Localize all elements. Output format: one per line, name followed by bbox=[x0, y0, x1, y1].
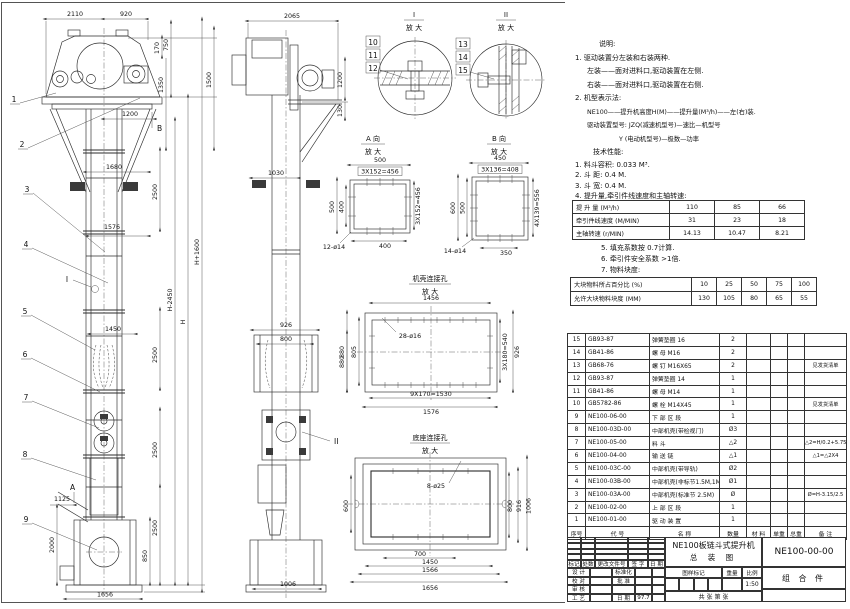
bom-cell: 10 bbox=[568, 398, 586, 411]
bom-cell: NE100-02-00 bbox=[586, 501, 650, 514]
bom-cell: △1=△2X4 bbox=[805, 450, 847, 463]
svg-text:1125: 1125 bbox=[54, 496, 70, 503]
bom-cell: 5 bbox=[568, 462, 586, 475]
bom-cell bbox=[805, 334, 847, 347]
bom-cell: 料 斗 bbox=[650, 437, 720, 450]
svg-text:1006: 1006 bbox=[280, 581, 296, 588]
svg-text:5: 5 bbox=[23, 307, 28, 316]
bom-cell bbox=[788, 411, 805, 424]
svg-text:1566: 1566 bbox=[422, 567, 438, 574]
mark-box bbox=[665, 578, 679, 591]
tech-line: 3. 斗 宽: 0.4 M. bbox=[567, 181, 849, 192]
mark-box bbox=[694, 578, 708, 591]
bom-cell bbox=[747, 411, 771, 424]
bom-cell: NE100-06-00 bbox=[586, 411, 650, 424]
staff-cell bbox=[652, 568, 665, 577]
staff-cell: 工 艺 bbox=[567, 594, 590, 603]
svg-text:2500: 2500 bbox=[152, 520, 159, 536]
svg-text:1656: 1656 bbox=[97, 592, 113, 599]
svg-text:1680: 1680 bbox=[106, 164, 122, 171]
mark-box bbox=[708, 578, 722, 591]
svg-text:1656: 1656 bbox=[422, 585, 438, 592]
rev-header-count: 处数 bbox=[581, 560, 595, 568]
rev-header-mark: 标记 bbox=[567, 560, 581, 568]
svg-text:700: 700 bbox=[414, 551, 426, 558]
bom-cell bbox=[771, 346, 788, 359]
drawing-title-line1: NE100板链斗式提升机 bbox=[672, 540, 754, 552]
bom-cell: 2 bbox=[720, 346, 747, 359]
staff-cell: 97.7 bbox=[635, 594, 652, 603]
svg-text:放 大: 放 大 bbox=[498, 23, 514, 32]
bom-cell: Ø=H-3.15/2.5 bbox=[805, 488, 847, 501]
bom-cell bbox=[788, 450, 805, 463]
svg-text:600: 600 bbox=[343, 500, 350, 512]
bom-cell: 螺 母 M14 bbox=[650, 385, 720, 398]
svg-text:1576: 1576 bbox=[104, 224, 120, 231]
bom-cell: 上 部 区 段 bbox=[650, 501, 720, 514]
table-cell: 50 bbox=[742, 278, 767, 292]
sheet-count: 共 张 第 张 bbox=[665, 591, 762, 602]
svg-text:750: 750 bbox=[163, 39, 170, 51]
bom-cell: 1 bbox=[720, 372, 747, 385]
staff-cell bbox=[635, 577, 652, 586]
svg-text:500: 500 bbox=[460, 202, 467, 214]
svg-text:1500: 1500 bbox=[206, 72, 213, 88]
svg-text:926: 926 bbox=[280, 322, 292, 329]
svg-text:1350: 1350 bbox=[158, 77, 165, 93]
bom-cell bbox=[771, 385, 788, 398]
table-cell: 66 bbox=[760, 201, 805, 214]
svg-text:1450: 1450 bbox=[105, 326, 121, 333]
bom-cell: 见发货清单 bbox=[805, 398, 847, 411]
detail-I-balloons: 10 11 12 bbox=[366, 36, 408, 79]
bom-cell bbox=[747, 450, 771, 463]
front-view: I 2110 920 170 750 1350 1500 1200 B 1680 bbox=[10, 11, 217, 599]
bom-cell bbox=[771, 411, 788, 424]
table-cell: 85 bbox=[715, 201, 760, 214]
table-cell: 主轴转速 (r/MIN) bbox=[573, 227, 670, 240]
bom-cell: 下 部 区 段 bbox=[650, 411, 720, 424]
staff-cell: 日 期 bbox=[612, 594, 635, 603]
engineering-drawing-sheet: .ln{stroke:#2b2b2b;fill:none;stroke-widt… bbox=[0, 0, 850, 609]
bom-cell bbox=[805, 424, 847, 437]
bom-cell bbox=[788, 346, 805, 359]
bom-cell bbox=[805, 411, 847, 424]
bom-cell bbox=[771, 398, 788, 411]
staff-cell: 设 计 bbox=[567, 568, 590, 577]
bom-cell bbox=[747, 501, 771, 514]
notes-heading: 说明: bbox=[567, 38, 849, 52]
bom-cell: 输 送 链 bbox=[650, 450, 720, 463]
bom-cell bbox=[747, 346, 771, 359]
table-cell: 10 bbox=[692, 278, 717, 292]
table-cell: 100 bbox=[792, 278, 817, 292]
table-cell: 130 bbox=[692, 292, 717, 306]
revision-grid bbox=[567, 537, 665, 560]
bom-cell bbox=[805, 501, 847, 514]
bom-cell: 1 bbox=[720, 514, 747, 527]
svg-text:2500: 2500 bbox=[152, 347, 159, 363]
rev-header-doc: 更改文件号 bbox=[595, 560, 628, 568]
bom-cell: Ø1 bbox=[720, 475, 747, 488]
bom-cell: 11 bbox=[568, 385, 586, 398]
base-connection-detail: 底座连接孔 放 大 8-ø25 600 800 916 1006 700 145… bbox=[343, 433, 533, 592]
front-balloons: 1 2 3 4 5 6 7 8 9 bbox=[10, 93, 140, 550]
bom-cell bbox=[747, 424, 771, 437]
svg-text:1: 1 bbox=[12, 95, 17, 104]
svg-text:170: 170 bbox=[154, 42, 161, 54]
bom-cell bbox=[788, 424, 805, 437]
staff-cell: 标准化 bbox=[612, 568, 635, 577]
bom-cell bbox=[805, 372, 847, 385]
drawing-number: NE100-00-00 bbox=[762, 537, 846, 567]
bom-cell: GB93-87 bbox=[586, 334, 650, 347]
svg-text:底座连接孔: 底座连接孔 bbox=[413, 433, 448, 442]
bom-cell bbox=[788, 385, 805, 398]
note-line: 1. 驱动装置分左装和右装两种. bbox=[567, 52, 849, 66]
svg-text:放 大: 放 大 bbox=[406, 23, 422, 32]
bom-cell: 14 bbox=[568, 346, 586, 359]
mark-box bbox=[679, 578, 693, 591]
table-cell: 14.13 bbox=[670, 227, 715, 240]
table-cell: 牵引件线速度 (M/MIN) bbox=[573, 214, 670, 227]
svg-text:2500: 2500 bbox=[152, 442, 159, 458]
svg-text:12-ø14: 12-ø14 bbox=[323, 244, 345, 251]
bom-cell: 15 bbox=[568, 334, 586, 347]
bom-cell bbox=[805, 514, 847, 527]
mark-label: 图样标记 bbox=[665, 567, 722, 578]
bom-cell: 7 bbox=[568, 437, 586, 450]
bom-cell: 螺 钉 M16X65 bbox=[650, 359, 720, 372]
svg-text:400: 400 bbox=[379, 243, 391, 250]
svg-text:1576: 1576 bbox=[423, 409, 439, 416]
bom-cell: 弹簧垫圈 14 bbox=[650, 372, 720, 385]
svg-text:350: 350 bbox=[500, 250, 512, 257]
blank-box bbox=[762, 589, 846, 602]
svg-text:2065: 2065 bbox=[284, 13, 300, 20]
table-cell: 110 bbox=[670, 201, 715, 214]
table-cell: 31 bbox=[670, 214, 715, 227]
bom-cell: Ø2 bbox=[720, 462, 747, 475]
bom-cell bbox=[788, 359, 805, 372]
bom-cell: 1 bbox=[720, 501, 747, 514]
tech-line: 2. 斗 距: 0.4 M. bbox=[567, 170, 849, 181]
bom-cell: GB68-76 bbox=[586, 359, 650, 372]
svg-text:II: II bbox=[504, 11, 508, 19]
svg-text:8-ø25: 8-ø25 bbox=[427, 483, 445, 490]
table-cell: 65 bbox=[767, 292, 792, 306]
detail-I: I 放 大 10 11 12 bbox=[366, 11, 456, 119]
note-line: 驱动装置型号: JZQ(减速机型号)—速比—机型号 bbox=[567, 119, 849, 133]
svg-text:4X139=556: 4X139=556 bbox=[534, 189, 541, 227]
svg-text:3: 3 bbox=[25, 185, 30, 194]
bom-cell: 1 bbox=[720, 411, 747, 424]
svg-text:800: 800 bbox=[507, 500, 514, 512]
bom-cell bbox=[771, 334, 788, 347]
svg-text:11: 11 bbox=[368, 51, 378, 60]
svg-text:920: 920 bbox=[120, 11, 132, 18]
detail-II: II 放 大 13 14 15 bbox=[456, 11, 546, 120]
bom-cell: 2 bbox=[568, 501, 586, 514]
bom-cell bbox=[771, 501, 788, 514]
svg-text:8: 8 bbox=[23, 450, 28, 459]
bom-cell bbox=[788, 398, 805, 411]
staff-cell: 审 核 bbox=[567, 585, 590, 594]
note-line: 5. 填充系数按 0.7计算. bbox=[567, 243, 849, 254]
svg-text:130: 130 bbox=[337, 105, 344, 117]
svg-text:400: 400 bbox=[339, 201, 346, 213]
note-line: 右装——面对进料口,驱动装置在右侧. bbox=[567, 79, 849, 93]
bom-cell: GB41-86 bbox=[586, 385, 650, 398]
notes2-block: 5. 填充系数按 0.7计算. 6. 牵引件安全系数 >1倍. 7. 物料块度: bbox=[567, 243, 849, 276]
bom-cell bbox=[805, 462, 847, 475]
bom-cell bbox=[747, 359, 771, 372]
note-line: NE100——提升机高度H(M)——提升量(M³/h)——左(右)装. bbox=[567, 106, 849, 120]
svg-text:450: 450 bbox=[494, 155, 506, 162]
view-a-label: A bbox=[70, 483, 76, 492]
svg-text:600: 600 bbox=[450, 202, 457, 214]
note-line: Y (电动机型号)—极数—功率 bbox=[567, 133, 849, 147]
bom-cell bbox=[788, 475, 805, 488]
svg-text:2500: 2500 bbox=[152, 184, 159, 200]
bom-cell bbox=[747, 398, 771, 411]
staff-cell bbox=[590, 568, 612, 577]
bom-cell: 3 bbox=[568, 488, 586, 501]
svg-text:14: 14 bbox=[458, 53, 468, 62]
bom-cell: NE100-03A-00 bbox=[586, 488, 650, 501]
bom-cell bbox=[788, 372, 805, 385]
case-connection-detail: 机壳连接孔 放 大 1456 28-ø16 880 805 3X180=540 … bbox=[339, 274, 521, 416]
bom-cell bbox=[788, 514, 805, 527]
tech-line: 1. 料斗容积: 0.033 M³. bbox=[567, 160, 849, 171]
parts-list: 15GB93-87弹簧垫圈 16214GB41-86螺 母 M16213GB68… bbox=[567, 333, 847, 540]
title-block: 标记 处数 更改文件号 签 字 日 期 设 计标准化校 对批 准审 核工 艺日 … bbox=[567, 537, 846, 602]
bom-cell bbox=[771, 437, 788, 450]
tech-heading: 技术性能: bbox=[567, 146, 849, 160]
assembly-label: 组 合 件 bbox=[762, 567, 846, 589]
weight-label: 重量 bbox=[722, 567, 742, 578]
staff-cell bbox=[590, 577, 612, 586]
bom-cell bbox=[747, 334, 771, 347]
capacity-speed-table: 提 升 量 (M³/h)1108566牵引件线速度 (M/MIN)312318主… bbox=[572, 200, 805, 240]
svg-text:2000: 2000 bbox=[49, 537, 56, 553]
note-line: 6. 牵引件安全系数 >1倍. bbox=[567, 254, 849, 265]
bom-cell: NE100-03B-00 bbox=[586, 475, 650, 488]
note-line: 左装——面对进料口,驱动装置在左侧. bbox=[567, 65, 849, 79]
table-cell: 25 bbox=[717, 278, 742, 292]
svg-text:1030: 1030 bbox=[268, 170, 284, 177]
table-cell: 80 bbox=[742, 292, 767, 306]
svg-text:916: 916 bbox=[516, 500, 523, 512]
bom-cell bbox=[771, 372, 788, 385]
staff-cell bbox=[590, 585, 612, 594]
bom-cell: △1 bbox=[720, 450, 747, 463]
svg-text:10: 10 bbox=[368, 38, 378, 47]
table-cell: 18 bbox=[760, 214, 805, 227]
bom-cell: △2 bbox=[720, 437, 747, 450]
bom-cell bbox=[771, 424, 788, 437]
bom-cell bbox=[747, 385, 771, 398]
bom-cell: 1 bbox=[720, 398, 747, 411]
bom-cell: 8 bbox=[568, 424, 586, 437]
drawing-views: .ln{stroke:#2b2b2b;fill:none;stroke-widt… bbox=[0, 0, 565, 609]
bom-cell bbox=[747, 437, 771, 450]
bom-cell: NE100-04-00 bbox=[586, 450, 650, 463]
staff-cell bbox=[590, 594, 612, 603]
staff-cell bbox=[652, 594, 665, 603]
staff-cell bbox=[635, 568, 652, 577]
table-cell: 提 升 量 (M³/h) bbox=[573, 201, 670, 214]
svg-text:1456: 1456 bbox=[423, 295, 439, 302]
rev-header-sign: 签 字 bbox=[628, 560, 648, 568]
svg-text:926: 926 bbox=[514, 346, 521, 358]
svg-text:800: 800 bbox=[280, 336, 292, 343]
svg-text:H: H bbox=[180, 319, 187, 324]
svg-text:1200: 1200 bbox=[122, 111, 138, 118]
table-cell: 23 bbox=[715, 214, 760, 227]
bom-cell: 2 bbox=[720, 359, 747, 372]
svg-text:H-2450: H-2450 bbox=[167, 288, 174, 311]
bom-cell: 中部机壳(标准节 2.5M) bbox=[650, 488, 720, 501]
lump-size-table: 大块物料所占百分比 (%)10255075100允许大块物料块度 (MM)130… bbox=[570, 277, 817, 306]
scale-label: 比例 bbox=[742, 567, 762, 578]
bom-cell: GB93-87 bbox=[586, 372, 650, 385]
front-dimensions: 2110 920 170 750 1350 1500 1200 B 1680 2… bbox=[46, 11, 217, 599]
svg-text:9: 9 bbox=[24, 515, 29, 524]
svg-text:3X152=456: 3X152=456 bbox=[415, 187, 422, 225]
table-cell: 75 bbox=[767, 278, 792, 292]
svg-text:2110: 2110 bbox=[67, 11, 83, 18]
svg-text:I: I bbox=[413, 11, 415, 19]
svg-text:880: 880 bbox=[339, 346, 346, 358]
bom-cell: NE100-03D-00 bbox=[586, 424, 650, 437]
table-cell: 55 bbox=[792, 292, 817, 306]
weight-value bbox=[722, 578, 742, 591]
svg-text:3X152=456: 3X152=456 bbox=[361, 169, 399, 176]
table-cell: 8.21 bbox=[760, 227, 805, 240]
bom-cell: 中部机壳(带检视门) bbox=[650, 424, 720, 437]
detail-ref-II: II bbox=[334, 437, 338, 446]
staff-cell bbox=[652, 577, 665, 586]
svg-text:6: 6 bbox=[23, 350, 28, 359]
svg-text:500: 500 bbox=[329, 201, 336, 213]
bom-cell bbox=[805, 346, 847, 359]
bom-cell bbox=[788, 462, 805, 475]
staff-cell bbox=[652, 585, 665, 594]
bom-cell: 2 bbox=[720, 334, 747, 347]
drawing-title-line2: 总 装 图 bbox=[690, 552, 737, 564]
staff-cell: 批 准 bbox=[612, 577, 635, 586]
bom-cell: GB5782-86 bbox=[586, 398, 650, 411]
drawing-title: NE100板链斗式提升机 总 装 图 bbox=[665, 537, 762, 567]
svg-text:4: 4 bbox=[24, 240, 29, 249]
svg-text:3X180=540: 3X180=540 bbox=[502, 333, 509, 371]
scale-value: 1:50 bbox=[742, 578, 762, 591]
bom-cell: 螺 栓 M14X45 bbox=[650, 398, 720, 411]
bom-cell bbox=[747, 488, 771, 501]
staff-cell bbox=[612, 585, 635, 594]
svg-text:805: 805 bbox=[351, 346, 358, 358]
view-b-label: B bbox=[157, 124, 162, 133]
table-cell: 105 bbox=[717, 292, 742, 306]
bom-cell: NE100-03C-00 bbox=[586, 462, 650, 475]
view-A: A 向 放 大 500 3X152=456 500 400 3X152=456 … bbox=[323, 134, 422, 251]
rev-header-date: 日 期 bbox=[648, 560, 665, 568]
svg-text:H+1600: H+1600 bbox=[194, 239, 201, 265]
detail-ref-I: I bbox=[66, 275, 68, 284]
bom-cell: 1 bbox=[568, 514, 586, 527]
svg-text:1450: 1450 bbox=[422, 559, 438, 566]
bom-cell bbox=[788, 334, 805, 347]
bom-cell: 6 bbox=[568, 450, 586, 463]
svg-text:1200: 1200 bbox=[337, 72, 344, 88]
bom-cell: NE100-01-00 bbox=[586, 514, 650, 527]
svg-text:28-ø16: 28-ø16 bbox=[399, 333, 421, 340]
svg-text:放 大: 放 大 bbox=[365, 147, 381, 156]
bom-cell bbox=[771, 450, 788, 463]
bom-cell bbox=[805, 475, 847, 488]
notes-block: 说明: 1. 驱动装置分左装和右装两种. 左装——面对进料口,驱动装置在左侧. … bbox=[567, 38, 849, 202]
bom-cell: 13 bbox=[568, 359, 586, 372]
bom-cell bbox=[747, 514, 771, 527]
svg-text:9X170=1530: 9X170=1530 bbox=[410, 391, 452, 398]
bom-cell: Ø3 bbox=[720, 424, 747, 437]
bom-cell: 中部机壳(非标节1.5M,1M) bbox=[650, 475, 720, 488]
bom-cell bbox=[747, 462, 771, 475]
bom-cell bbox=[805, 385, 847, 398]
bom-cell bbox=[747, 475, 771, 488]
bom-cell bbox=[747, 372, 771, 385]
staff-cell: 校 对 bbox=[567, 577, 590, 586]
svg-text:12: 12 bbox=[368, 64, 378, 73]
bom-cell: 驱 动 装 置 bbox=[650, 514, 720, 527]
bom-cell: 中部机壳(带导轨) bbox=[650, 462, 720, 475]
table-cell: 大块物料所占百分比 (%) bbox=[571, 278, 692, 292]
bom-cell: 见发货清单 bbox=[805, 359, 847, 372]
note-line: 2. 机型表示法: bbox=[567, 92, 849, 106]
view-B: B 向 放 大 450 3X136=408 600 500 4X139=556 … bbox=[444, 134, 541, 257]
svg-text:7: 7 bbox=[24, 393, 29, 402]
svg-text:15: 15 bbox=[458, 66, 468, 75]
bom-cell bbox=[788, 501, 805, 514]
staff-cell bbox=[635, 585, 652, 594]
svg-text:14-ø14: 14-ø14 bbox=[444, 248, 466, 255]
bom-cell bbox=[771, 514, 788, 527]
bom-cell bbox=[771, 359, 788, 372]
bom-cell: Ø bbox=[720, 488, 747, 501]
bom-cell: 螺 母 M16 bbox=[650, 346, 720, 359]
bom-cell: 1 bbox=[720, 385, 747, 398]
bom-cell: NE100-05-00 bbox=[586, 437, 650, 450]
bom-cell: GB41-86 bbox=[586, 346, 650, 359]
bom-cell bbox=[771, 488, 788, 501]
side-view: 2065 1200 130 1030 926 800 880 1006 II bbox=[232, 13, 348, 598]
bom-cell bbox=[771, 462, 788, 475]
svg-text:13: 13 bbox=[458, 40, 468, 49]
svg-text:850: 850 bbox=[142, 550, 149, 562]
svg-text:B 向: B 向 bbox=[492, 134, 506, 143]
bom-cell: △2=H/0.2+5.75 bbox=[805, 437, 847, 450]
svg-text:1006: 1006 bbox=[526, 498, 533, 514]
svg-text:机壳连接孔: 机壳连接孔 bbox=[413, 274, 448, 283]
bom-cell: 12 bbox=[568, 372, 586, 385]
svg-text:3X136=408: 3X136=408 bbox=[481, 167, 519, 174]
bom-cell bbox=[771, 475, 788, 488]
bom-cell bbox=[788, 437, 805, 450]
svg-text:2: 2 bbox=[20, 140, 25, 149]
bom-cell: 9 bbox=[568, 411, 586, 424]
table-cell: 允许大块物料块度 (MM) bbox=[571, 292, 692, 306]
